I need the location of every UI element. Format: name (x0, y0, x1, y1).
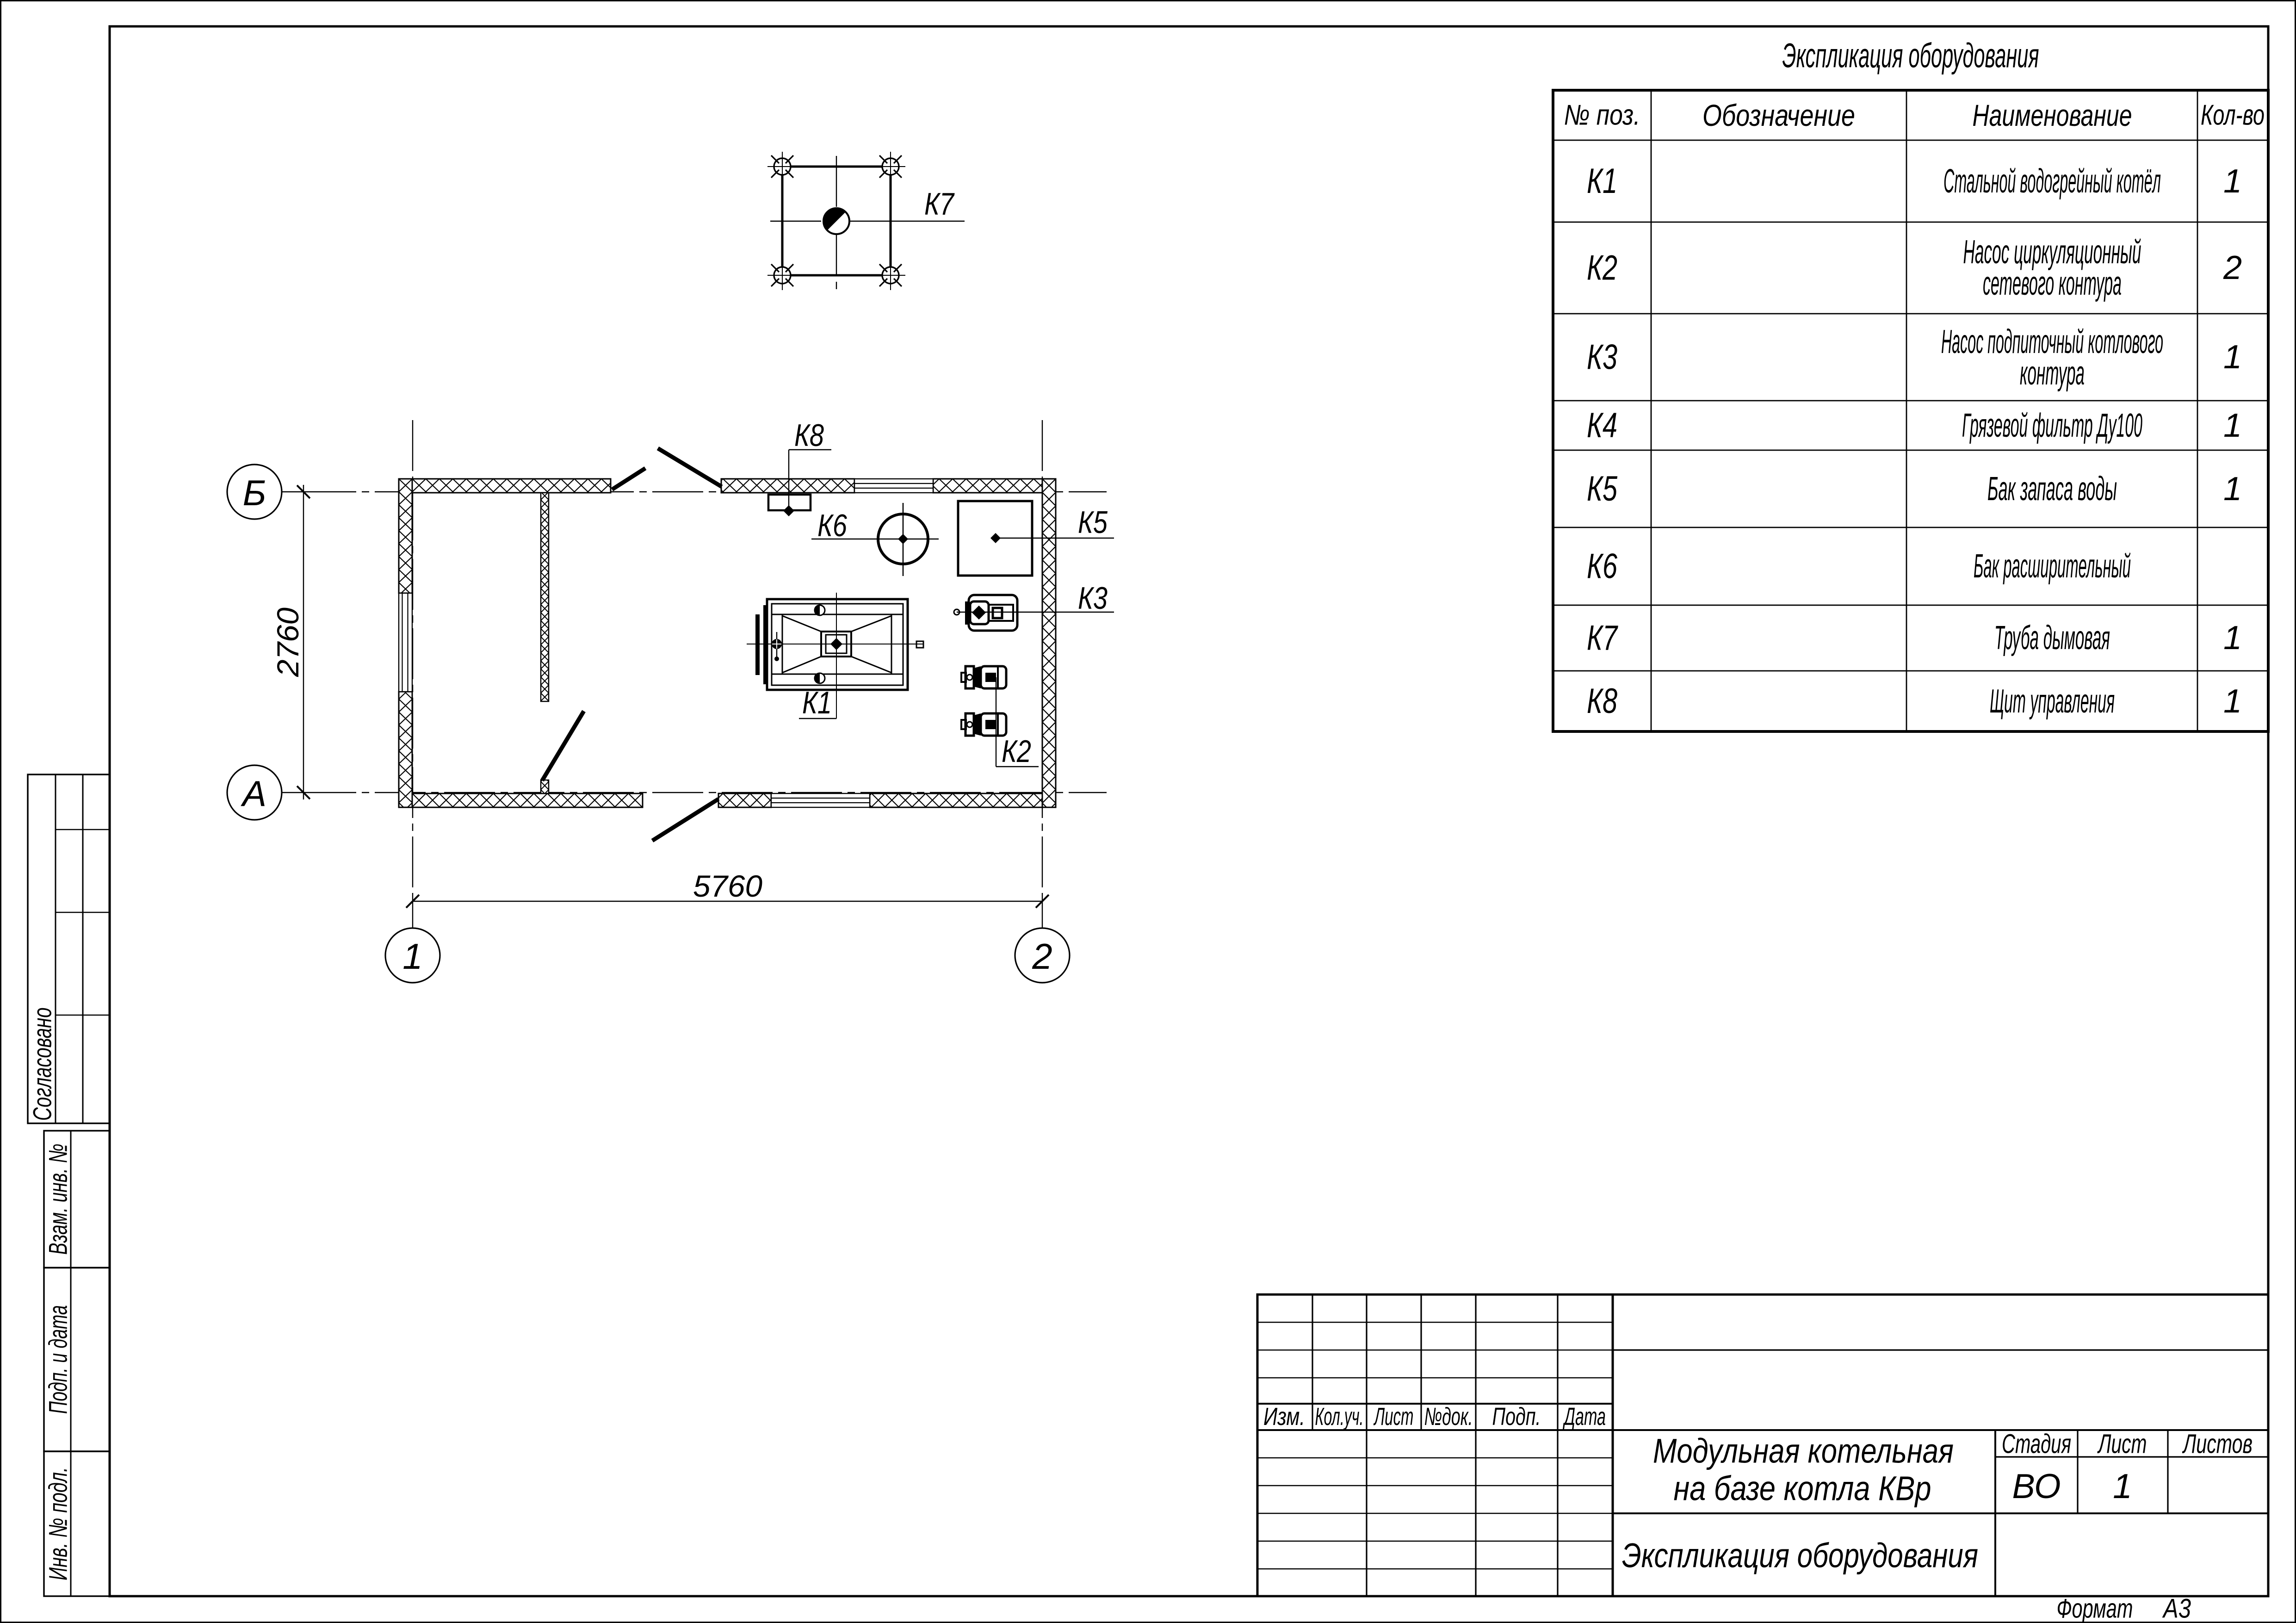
svg-text:К3: К3 (1078, 581, 1108, 616)
svg-text:Подп. и дата: Подп. и дата (43, 1305, 73, 1414)
svg-text:К2: К2 (1002, 734, 1031, 769)
svg-text:Б: Б (243, 472, 266, 513)
svg-text:на базе котла КВр: на базе котла КВр (1674, 1469, 1931, 1508)
svg-text:Наименование: Наименование (1973, 98, 2132, 132)
svg-text:Лист: Лист (1374, 1403, 1414, 1431)
svg-text:К7: К7 (1587, 619, 1618, 658)
svg-text:Бак запаса воды: Бак запаса воды (1987, 471, 2117, 508)
svg-text:Труба дымовая: Труба дымовая (1994, 619, 2110, 657)
svg-text:Модульная котельная: Модульная котельная (1653, 1432, 1954, 1470)
svg-text:К2: К2 (1587, 248, 1617, 288)
svg-text:К5: К5 (1078, 505, 1108, 540)
svg-text:К4: К4 (1587, 406, 1617, 445)
svg-text:Формат: Формат (2057, 1594, 2133, 1623)
svg-text:контура: контура (2020, 355, 2085, 392)
svg-text:К1: К1 (802, 685, 832, 720)
svg-text:Листов: Листов (2182, 1429, 2253, 1459)
svg-text:Кол.уч.: Кол.уч. (1315, 1403, 1364, 1431)
svg-text:К3: К3 (1587, 338, 1617, 377)
svg-text:К1: К1 (1587, 161, 1617, 201)
svg-text:К5: К5 (1587, 469, 1618, 508)
svg-text:Грязевой фильтр Ду100: Грязевой фильтр Ду100 (1962, 407, 2142, 444)
svg-text:К8: К8 (794, 418, 824, 453)
svg-text:Экспликация оборудования: Экспликация оборудования (1782, 37, 2039, 75)
svg-text:К7: К7 (924, 186, 955, 222)
svg-text:Изм.: Изм. (1263, 1403, 1305, 1431)
svg-text:Экспликация оборудования: Экспликация оборудования (1622, 1536, 1978, 1575)
svg-text:1: 1 (2113, 1467, 2132, 1505)
svg-text:К6: К6 (1587, 547, 1618, 586)
svg-text:1: 1 (2223, 339, 2242, 376)
svg-text:2760: 2760 (271, 607, 305, 677)
svg-text:2: 2 (1032, 936, 1052, 977)
svg-text:К8: К8 (1587, 681, 1617, 721)
svg-text:Лист: Лист (2097, 1429, 2147, 1459)
svg-text:Взам. инв. №: Взам. инв. № (43, 1144, 73, 1255)
svg-text:Подп.: Подп. (1492, 1403, 1541, 1431)
svg-text:1: 1 (2223, 163, 2242, 200)
svg-text:1: 1 (2223, 619, 2242, 657)
svg-text:5760: 5760 (693, 869, 762, 903)
svg-text:Стальной водогрейный котёл: Стальной водогрейный котёл (1943, 163, 2161, 200)
svg-text:Щит управления: Щит управления (1990, 683, 2115, 720)
svg-text:сетевого контура: сетевого контура (1983, 265, 2122, 302)
svg-text:1: 1 (2223, 471, 2242, 508)
svg-text:ВО: ВО (2012, 1467, 2061, 1505)
svg-text:Обозначение: Обозначение (1702, 98, 1855, 132)
svg-text:1: 1 (2223, 683, 2242, 720)
svg-text:1: 1 (2223, 407, 2242, 444)
svg-text:Кол-во: Кол-во (2201, 99, 2265, 131)
svg-text:Бак расширительный: Бак расширительный (1974, 548, 2131, 585)
svg-text:А3: А3 (2162, 1594, 2191, 1623)
svg-text:Дата: Дата (1563, 1403, 1606, 1431)
svg-text:К6: К6 (817, 508, 847, 543)
svg-text:Стадия: Стадия (2002, 1429, 2071, 1459)
svg-text:Согласовано: Согласовано (28, 1008, 57, 1121)
svg-text:Инв. № подл.: Инв. № подл. (43, 1467, 73, 1580)
svg-text:1: 1 (402, 936, 422, 977)
svg-text:2: 2 (2223, 249, 2242, 286)
svg-text:№ поз.: № поз. (1564, 99, 1640, 131)
svg-text:№док.: №док. (1424, 1403, 1473, 1431)
svg-text:А: А (241, 773, 266, 814)
